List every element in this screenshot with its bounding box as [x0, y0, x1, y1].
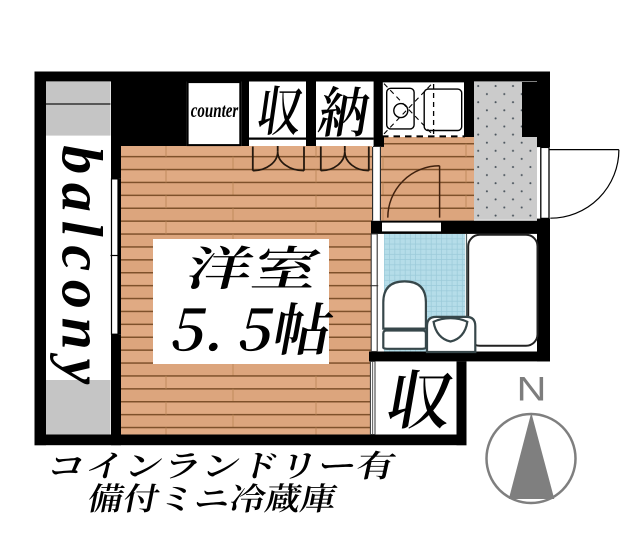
svg-text:counter: counter [191, 100, 239, 122]
svg-text:N: N [517, 371, 547, 409]
svg-text:balcony: balcony [50, 145, 115, 393]
